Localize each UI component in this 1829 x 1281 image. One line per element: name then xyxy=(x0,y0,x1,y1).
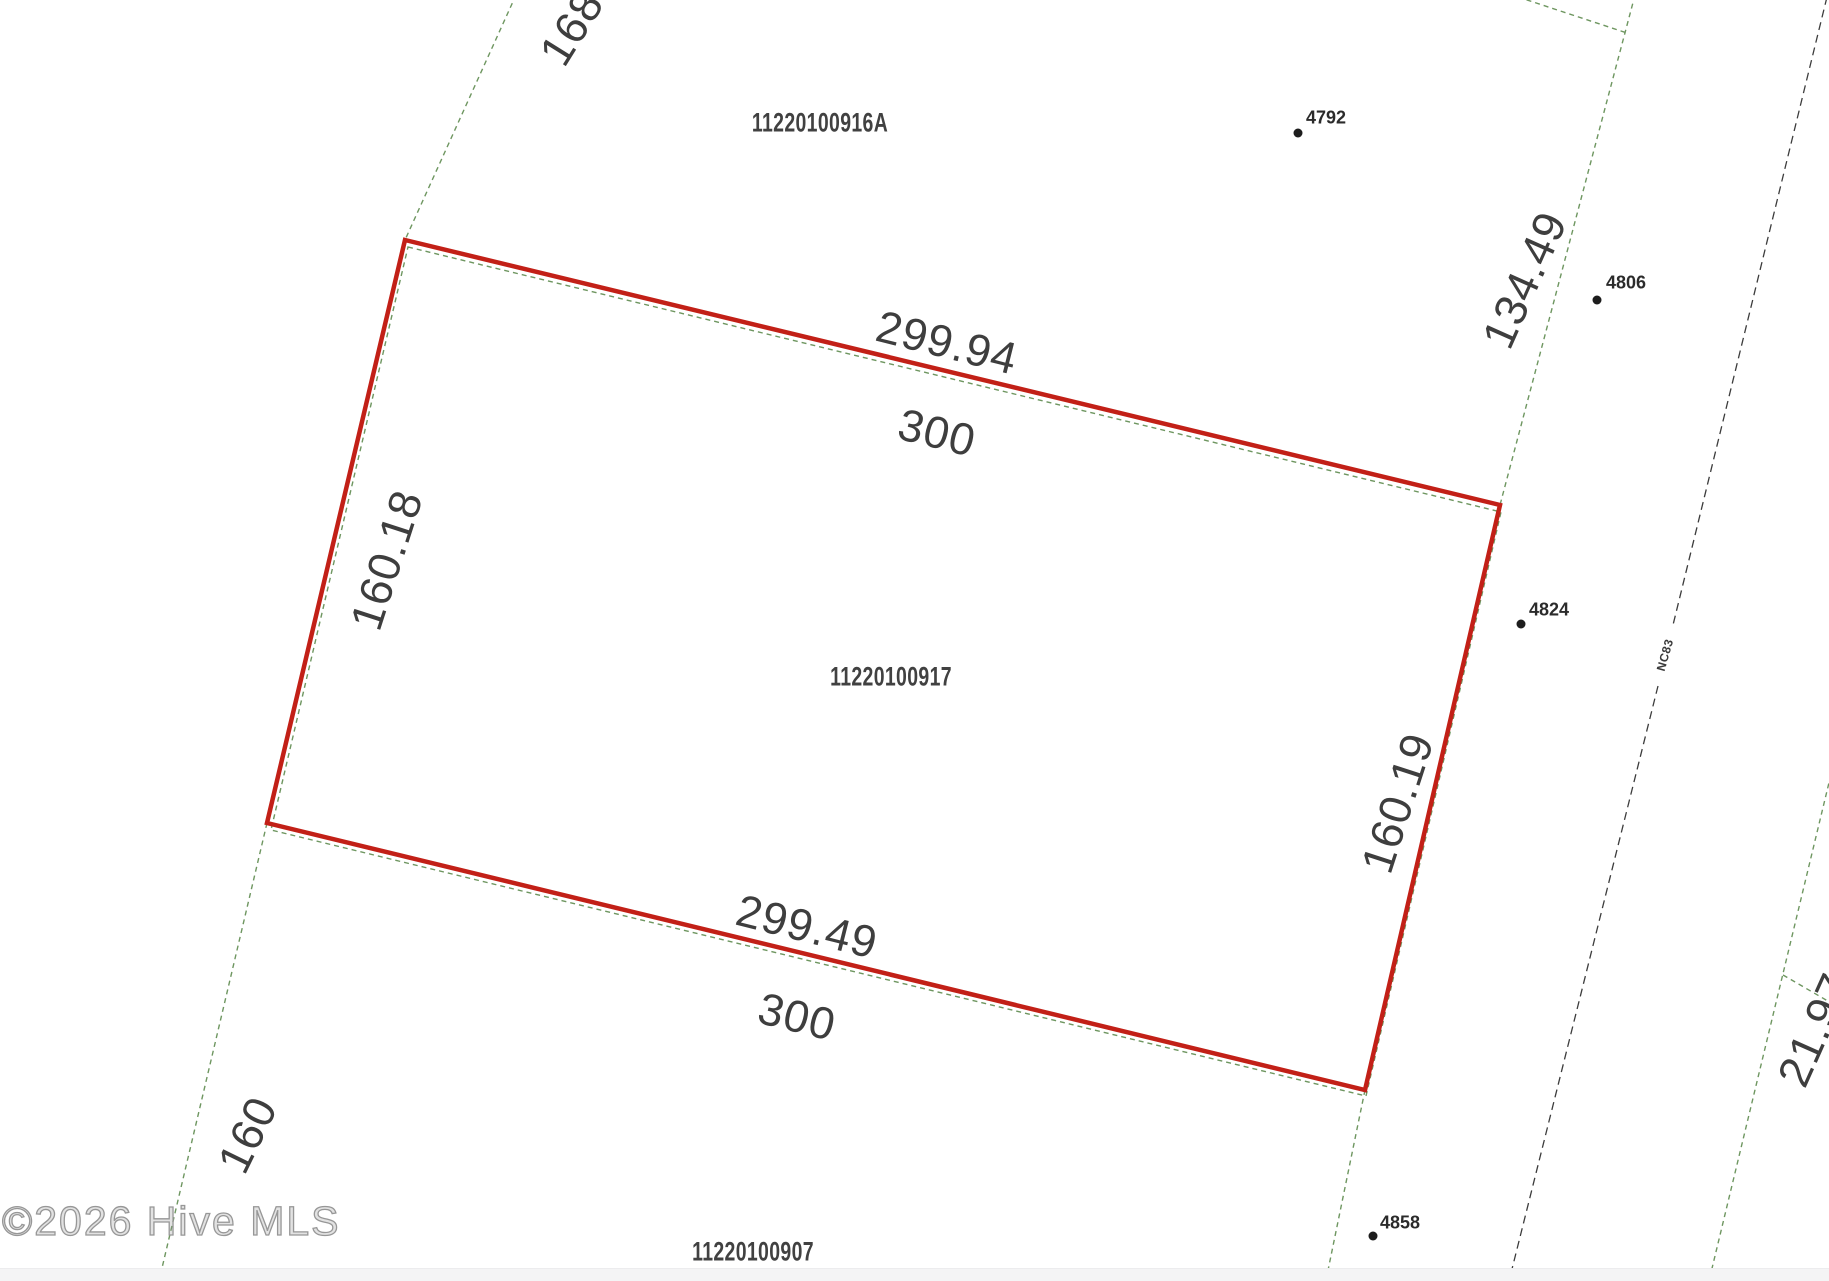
map-geometry xyxy=(0,0,1829,1281)
plat-map: 168 134.49 299.94 300 160.18 160.19 299.… xyxy=(0,0,1829,1281)
boundary-southeast xyxy=(1325,1090,1365,1281)
parcel-id-south: 11220100907 xyxy=(692,1237,814,1268)
boundary-northwest xyxy=(405,0,516,240)
address-label-4806: 4806 xyxy=(1606,273,1646,294)
address-dot-4824 xyxy=(1517,620,1526,629)
address-label-4824: 4824 xyxy=(1529,600,1569,621)
parcel-id-north: 11220100916A xyxy=(752,108,888,139)
parcel-id-subject: 11220100917 xyxy=(830,662,952,693)
road-centerline-lower xyxy=(1508,686,1658,1281)
address-dot-4806 xyxy=(1593,296,1602,305)
address-dot-4792 xyxy=(1294,129,1303,138)
address-dot-4858 xyxy=(1369,1232,1378,1241)
address-label-4792: 4792 xyxy=(1306,108,1346,129)
address-label-4858: 4858 xyxy=(1380,1213,1420,1234)
mls-watermark: ©2026 Hive MLS xyxy=(2,1198,341,1245)
bottom-strip xyxy=(0,1268,1829,1281)
boundary-north-branch xyxy=(1518,0,1627,33)
road-centerline-upper xyxy=(1673,0,1827,625)
